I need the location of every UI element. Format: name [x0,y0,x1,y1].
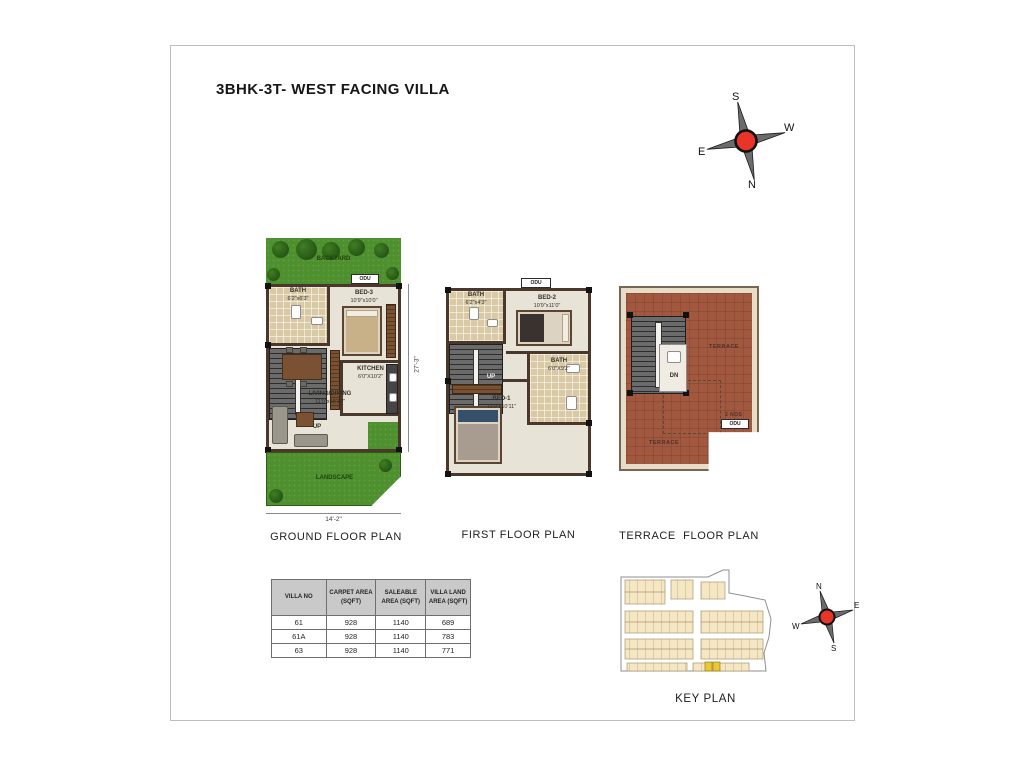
ff-bed1-label: BED-1 11'0"x10'11" [474,396,529,411]
page-canvas: 3BHK-3T- WEST FACING VILLA S W E N [0,0,1024,768]
room-size: 11'0"x10'11" [474,404,529,411]
pillar [586,471,592,477]
blanket [458,424,498,460]
pillar [586,420,592,426]
ff-bath-top-label: BATH 6'2"x4'3" [449,292,503,307]
gf-kitchen-label: KITCHEN 6'0"X10'2" [343,366,398,381]
tree-icon [348,239,365,256]
ff-bed2-label: BED-2 10'9"x11'0" [506,295,588,310]
pillar [445,471,451,477]
gf-up-label: UP [302,424,332,432]
chair-icon [300,347,307,353]
pillar [265,342,271,348]
room-name: LIVING/DINING [309,391,352,397]
odu-unit-label: ODU [721,419,749,429]
cell-carpet-area: 928 [326,616,376,630]
dining-table-icon [282,354,322,380]
landscape-area: LANDSCAPE [266,452,401,506]
room-size: 10'9"x10'0" [330,298,398,305]
pillar [396,283,402,289]
terrace-floor-title: TERRACE FLOOR PLAN [609,530,769,542]
pillar [627,312,633,318]
room-name: KITCHEN [357,366,384,372]
tree-icon [379,459,392,472]
compass-label-north: N [748,179,756,191]
sofa-icon [294,434,328,447]
odu-unit-label: ODU [521,278,551,288]
room-size: 6'0"X9'2" [530,366,588,373]
compass-label-east: E [698,146,705,158]
bed-icon [342,306,382,356]
room-size: 6'2"x4'3" [449,300,503,307]
room-name: BATH [468,292,484,298]
first-floor-plan: ODU BATH 6'2"x4'3" BED-2 10'9"x11'0" [446,278,591,476]
cell-land-area: 783 [426,630,471,644]
column-header: CARPET AREA (SQFT) [326,580,376,616]
first-floor-title: FIRST FLOOR PLAN [436,529,601,541]
sofa-icon [272,406,288,444]
terrace-floor-plan: DN TERRACE TERRACE 2 NOS ODU [619,286,759,471]
toilet-icon [469,307,479,320]
tree-icon [267,268,280,281]
room-name: BED-1 [492,396,510,402]
room-name: BED-2 [538,295,556,301]
tree-icon [269,489,283,503]
room-name: BED-3 [355,290,373,296]
landscape-label: LANDSCAPE [267,475,402,483]
sheet-border: 3BHK-3T- WEST FACING VILLA S W E N [170,45,855,721]
room-size: 6'2"x6'3" [269,296,327,303]
bed-icon [516,310,572,346]
toilet-icon [291,305,301,319]
wardrobe-icon [452,384,502,394]
villa-area-table: VILLA NO CARPET AREA (SQFT) SALEABLE ARE… [271,579,471,658]
key-plan-title: KEY PLAN [613,693,798,705]
cell-carpet-area: 928 [326,630,376,644]
pillow [458,410,498,422]
pillow [562,314,569,342]
room-name: BATH [551,358,567,364]
backyard-area: BACKYARD [266,238,401,284]
cell-villa-no: 61A [272,630,327,644]
gf-living-label: LIVING/DINING 11'0"x15'10" [294,391,366,406]
key-plan-map [613,567,798,689]
compass-label-north: N [816,582,822,591]
ff-up-label: UP [476,374,506,382]
toilet-icon [566,396,577,410]
pillar [627,390,633,396]
gf-bed3-label: BED-3 10'9"x10'0" [330,290,398,305]
wall [269,343,330,346]
ff-bath-bottom-label: BATH 6'0"X9'2" [530,358,588,373]
appliance-icon [667,351,681,363]
sink-icon [487,319,498,327]
column-header: SALEABLE AREA (SQFT) [376,580,426,616]
stove-icon [389,393,397,402]
pillar [683,312,689,318]
room-size: 11'0"x15'10" [294,399,366,406]
cell-villa-no: 63 [272,644,327,658]
tree-icon [386,267,399,280]
pillar [445,378,451,384]
column-header: VILLA LAND AREA (SQFT) [426,580,471,616]
table-header-row: VILLA NO CARPET AREA (SQFT) SALEABLE ARE… [272,580,471,616]
cell-carpet-area: 928 [326,644,376,658]
pillow [346,310,378,317]
gf-height-dim: 27'-3" [414,345,421,385]
compass-label-south: S [831,644,836,653]
wall [527,422,588,425]
cell-saleable-area: 1140 [376,630,426,644]
room-size: 10'9"x11'0" [506,303,588,310]
wardrobe-icon [386,304,396,358]
table-row: 61A 928 1140 783 [272,630,471,644]
ground-floor-title: GROUND FLOOR PLAN [256,531,416,543]
column-header: VILLA NO [272,580,327,616]
cell-saleable-area: 1140 [376,644,426,658]
compass-label-east: E [854,601,859,610]
room-name: BATH [290,288,306,294]
terrace-parapet: DN TERRACE TERRACE 2 NOS ODU [619,286,759,471]
compass-label-west: W [792,622,800,631]
terrace-label-lower: TERRACE [649,440,679,446]
gf-width-dim: 14'-2" [266,516,401,523]
pillar [586,287,592,293]
odu-unit-label: ODU [351,274,379,284]
bed-icon [454,406,502,464]
ground-floor-plan: BACKYARD ODU BATH 6'2"x6'3" BED-3 [266,238,401,506]
table-row: 61 928 1140 689 [272,616,471,630]
gf-side-lawn [368,422,398,449]
terrace-label-upper: TERRACE [709,344,739,350]
tf-dn-label: DN [660,373,688,381]
compass-rose-icon: S W E N [694,87,798,191]
room-size: 6'0"X10'2" [343,374,398,381]
key-plan-compass-icon: N E W S [789,579,865,655]
cell-villa-no: 61 [272,616,327,630]
cell-land-area: 771 [426,644,471,658]
backyard-label: BACKYARD [266,256,401,264]
chair-icon [286,381,293,387]
bed-throw [520,314,544,342]
compass-label-south: S [732,91,739,103]
dimension-line-horizontal [266,513,401,514]
dimension-line-vertical [408,284,409,452]
chair-icon [300,381,307,387]
chair-icon [286,347,293,353]
compass-label-west: W [784,122,795,134]
gf-bath-label: BATH 6'2"x6'3" [269,288,327,303]
tf-odu-qty: 2 NOS [725,412,743,418]
cell-land-area: 689 [426,616,471,630]
sink-icon [311,317,323,325]
page-title: 3BHK-3T- WEST FACING VILLA [216,81,450,98]
table-row: 63 928 1140 771 [272,644,471,658]
stair-landing: DN [659,344,687,392]
cell-saleable-area: 1140 [376,616,426,630]
